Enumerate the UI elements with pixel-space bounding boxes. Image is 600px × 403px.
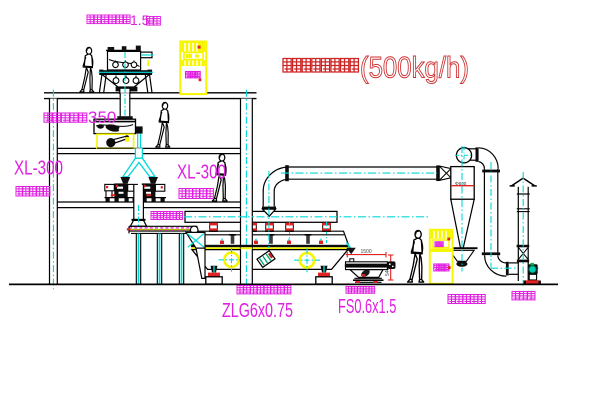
svg-text:350: 350: [88, 108, 116, 127]
svg-text:1500: 1500: [361, 249, 372, 255]
svg-text:(500kg/h): (500kg/h): [360, 51, 469, 84]
svg-text:ZLG6x0.75: ZLG6x0.75: [222, 298, 293, 321]
svg-text:XL-300: XL-300: [177, 160, 226, 183]
svg-text:XL-300: XL-300: [14, 156, 63, 179]
svg-text:FS0.6x1.5: FS0.6x1.5: [338, 295, 396, 318]
svg-text:Φ600: Φ600: [455, 181, 467, 186]
